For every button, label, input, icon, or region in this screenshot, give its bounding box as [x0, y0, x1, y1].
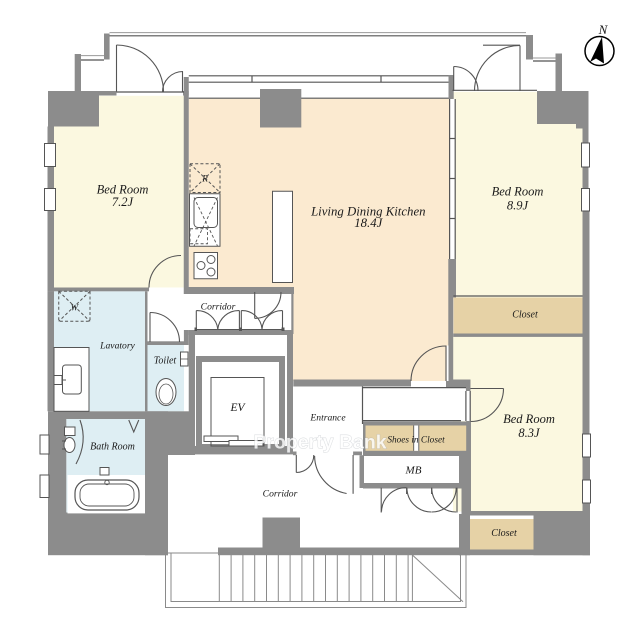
svg-text:8.3J: 8.3J	[518, 426, 541, 440]
svg-text:R: R	[201, 174, 208, 184]
svg-text:Closet: Closet	[491, 528, 517, 539]
svg-text:Corridor: Corridor	[201, 302, 236, 313]
svg-text:18.4J: 18.4J	[354, 216, 383, 230]
svg-text:Bed Room: Bed Room	[492, 185, 544, 199]
svg-text:Property Bank: Property Bank	[253, 432, 386, 454]
svg-text:MB: MB	[405, 465, 422, 477]
svg-text:Shoes in Closet: Shoes in Closet	[387, 436, 445, 446]
svg-text:Bed Room: Bed Room	[97, 182, 149, 196]
svg-text:Closet: Closet	[512, 310, 538, 321]
svg-text:Bath Room: Bath Room	[90, 442, 135, 453]
svg-text:Toilet: Toilet	[154, 356, 177, 367]
svg-text:Entrance: Entrance	[309, 412, 346, 423]
svg-text:8.9J: 8.9J	[507, 199, 530, 213]
svg-text:Bed Room: Bed Room	[503, 412, 555, 426]
svg-text:Corridor: Corridor	[263, 489, 298, 500]
svg-text:Lavatory: Lavatory	[99, 341, 135, 352]
svg-text:EV: EV	[229, 402, 246, 414]
svg-text:N: N	[598, 22, 609, 37]
svg-text:7.2J: 7.2J	[112, 195, 135, 209]
